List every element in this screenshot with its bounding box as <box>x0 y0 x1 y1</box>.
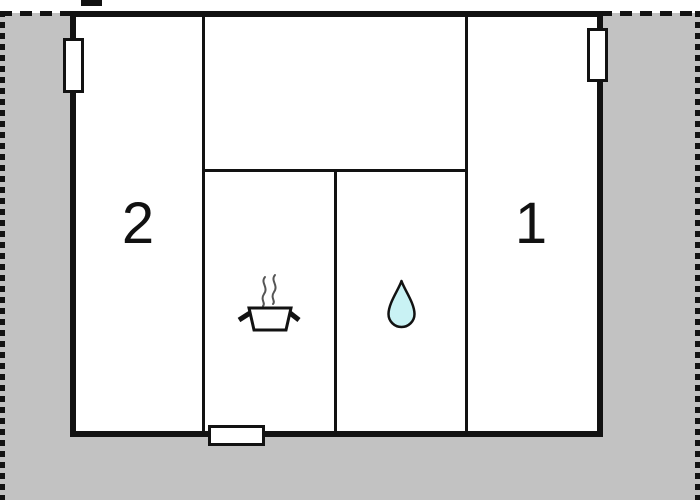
room-label-1: 1 <box>491 193 571 255</box>
window-right <box>587 28 608 82</box>
chimney <box>81 0 102 6</box>
steam-line-right <box>273 275 276 304</box>
cooking-pot-icon <box>236 270 302 334</box>
steam-line-left <box>263 277 266 306</box>
interior-wall-right <box>465 17 468 431</box>
floorplan: 2 1 <box>0 0 700 500</box>
entrance-door <box>208 425 265 446</box>
room-label-2: 2 <box>98 193 178 255</box>
plot-boundary-right <box>695 11 700 500</box>
interior-wall-left <box>202 17 205 431</box>
pot-handle-right <box>290 313 299 320</box>
pot-body <box>249 308 291 330</box>
water-drop-shape <box>389 281 415 327</box>
interior-wall-divider <box>334 172 337 431</box>
water-drop-icon <box>386 279 417 330</box>
plot-boundary-left <box>0 11 5 500</box>
pot-handle-left <box>239 313 250 320</box>
window-left <box>63 38 84 93</box>
